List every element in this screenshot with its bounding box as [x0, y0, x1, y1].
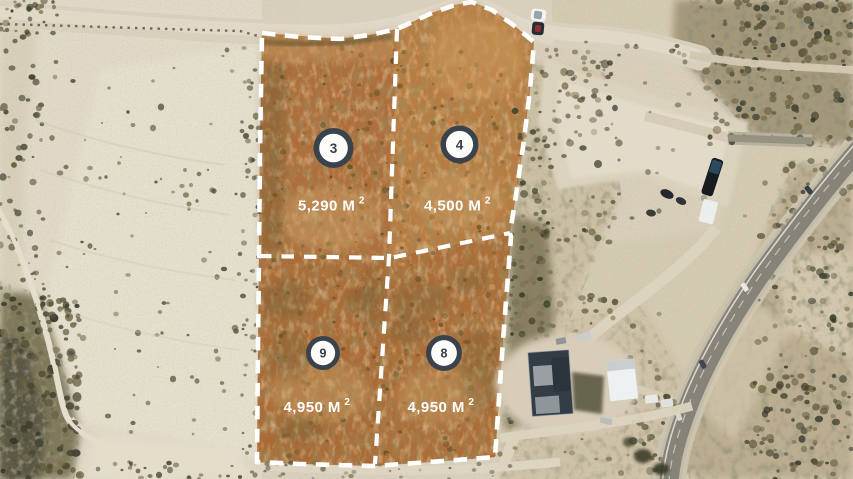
svg-text:9: 9: [320, 347, 327, 361]
svg-text:5,290 M2: 5,290 M2: [298, 196, 365, 215]
svg-text:4: 4: [456, 138, 464, 153]
svg-text:4,500 M2: 4,500 M2: [424, 196, 491, 215]
svg-text:4,950 M2: 4,950 M2: [408, 397, 475, 416]
svg-text:3: 3: [330, 141, 338, 156]
svg-text:8: 8: [441, 347, 448, 361]
svg-text:4,950 M2: 4,950 M2: [284, 397, 351, 416]
